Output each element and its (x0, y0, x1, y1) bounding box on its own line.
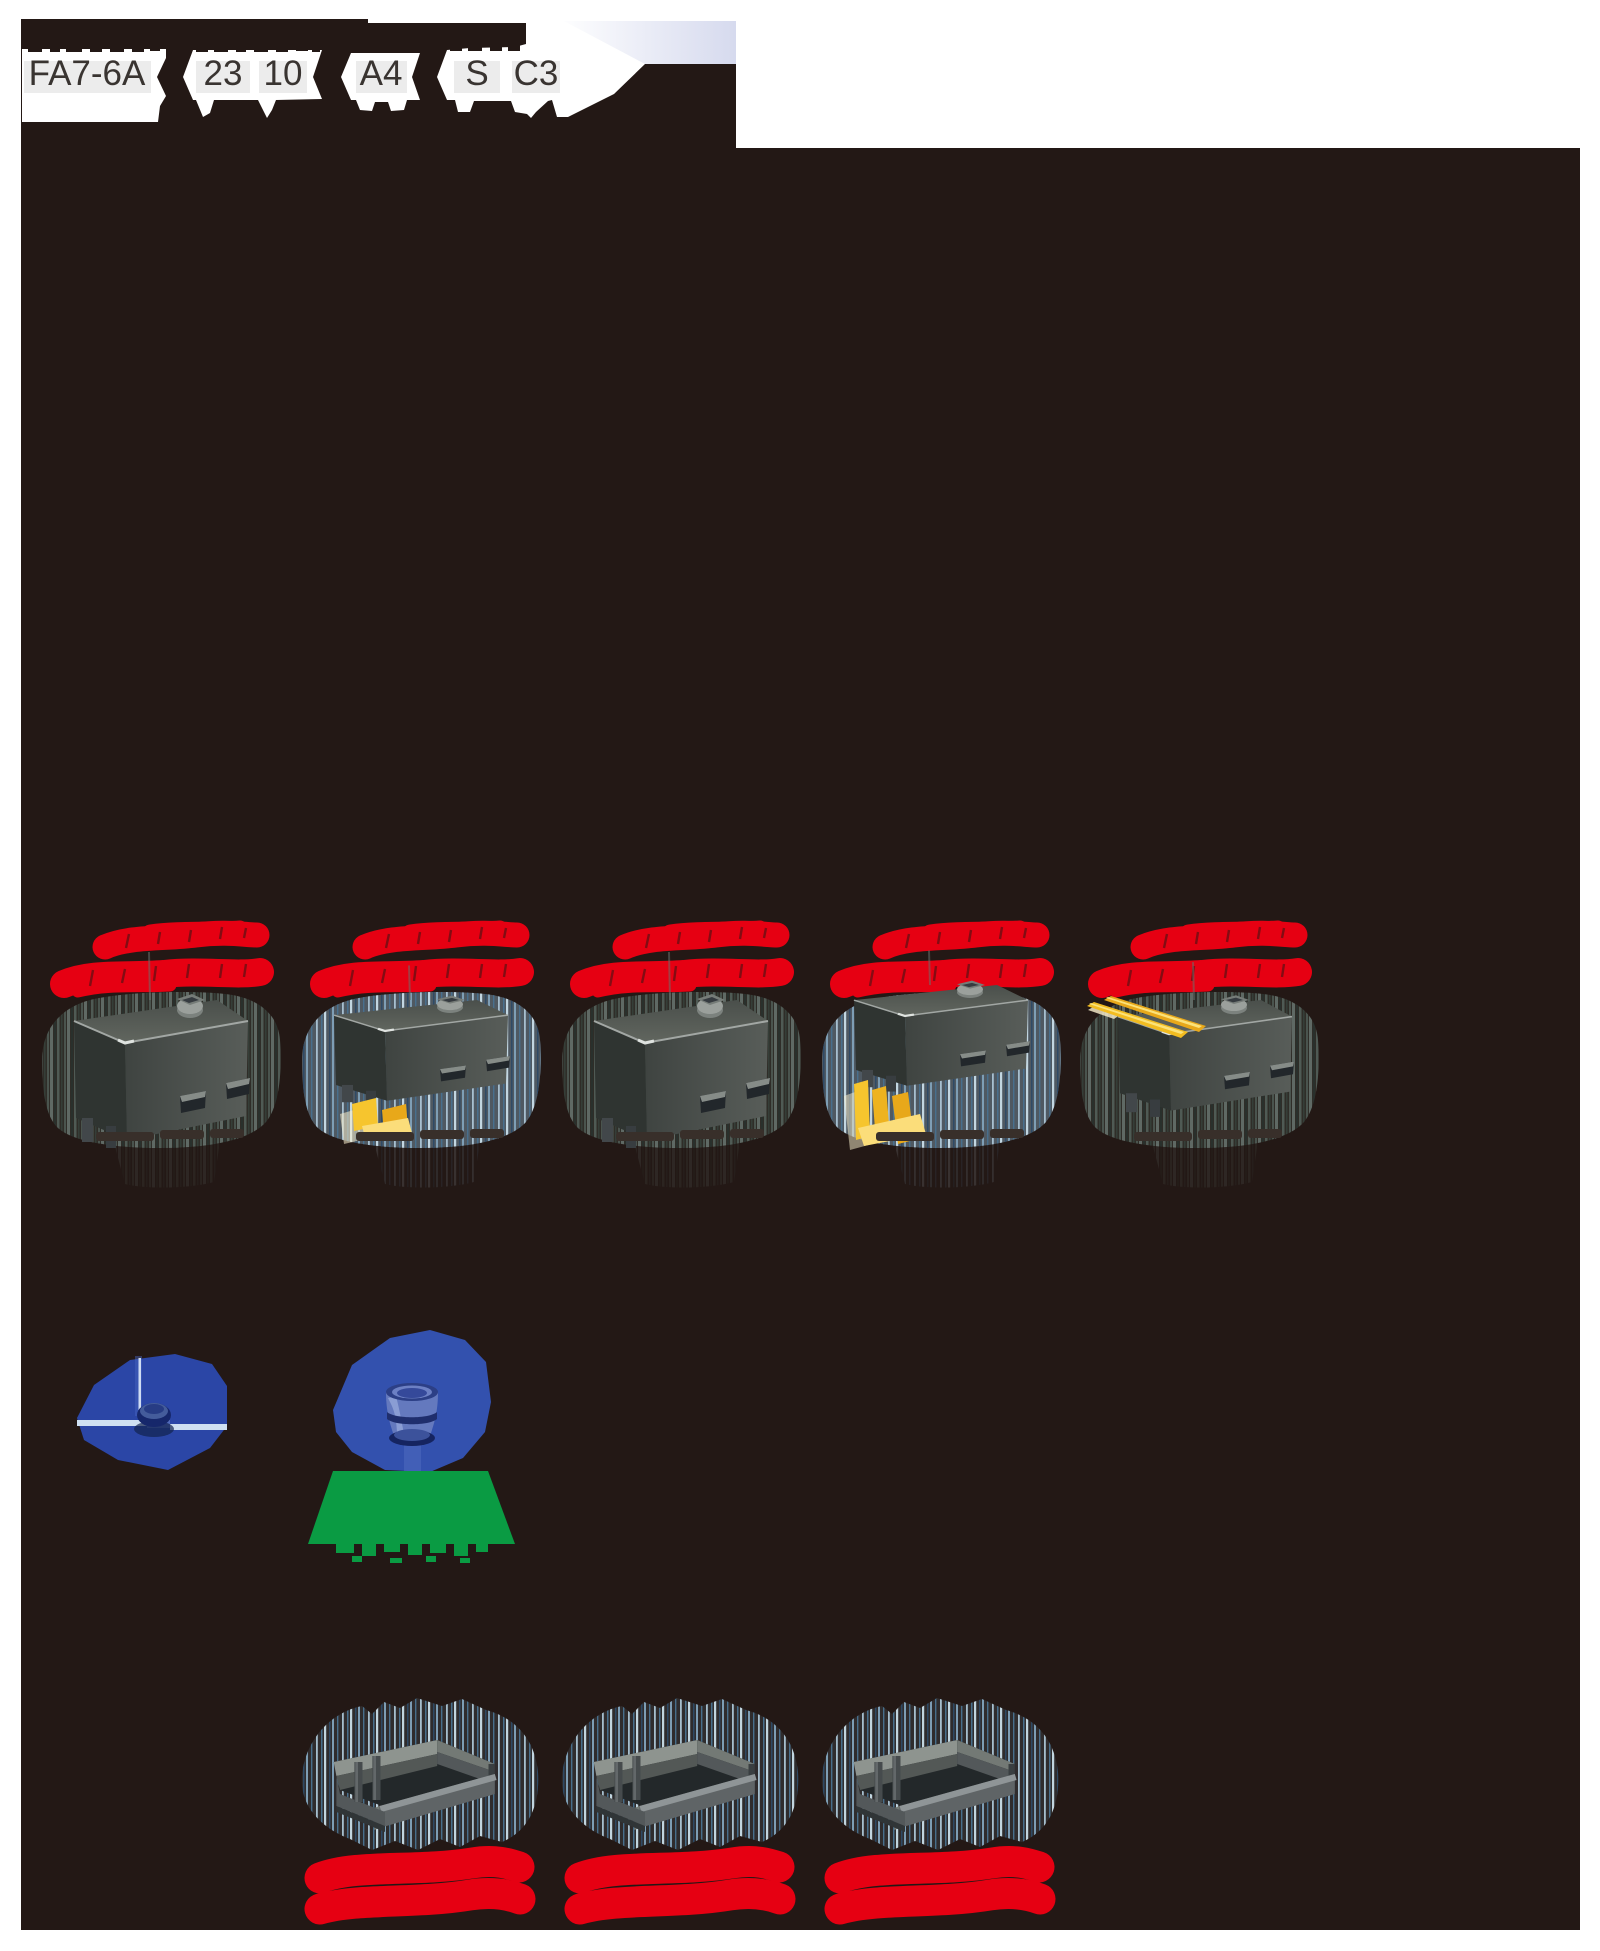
svg-text:23: 23 (204, 54, 243, 93)
svg-text:S: S (465, 54, 488, 93)
svg-text:FA7-6A: FA7-6A (29, 54, 146, 93)
svg-text:A4: A4 (360, 54, 403, 93)
svg-text:10: 10 (264, 54, 303, 93)
svg-text:C3: C3 (514, 54, 559, 93)
